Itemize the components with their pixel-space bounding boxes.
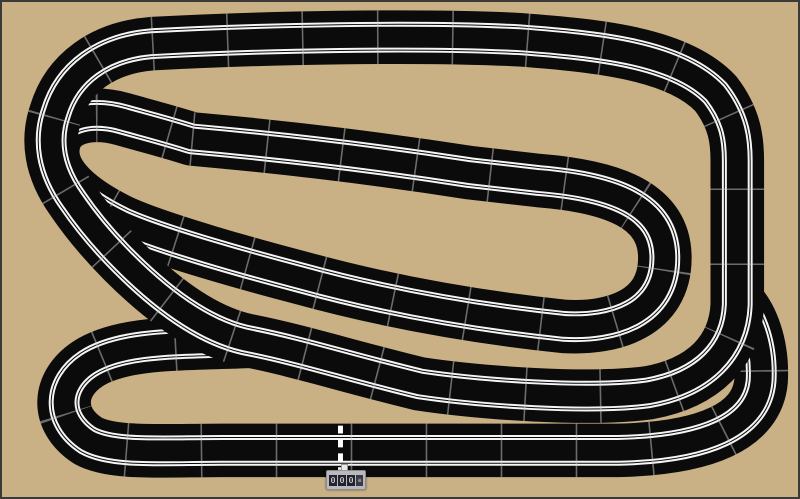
lap-counter-track-connector [341,464,348,471]
lap-counter-reset-button[interactable]: ≡ [356,475,363,486]
lap-counter-digit: 0 [347,475,355,486]
lap-counter[interactable]: 0 0 0 ≡ [326,470,366,490]
track-diagram [2,2,798,497]
lap-counter-digit: 0 [338,475,346,486]
track-layout-canvas: 0 0 0 ≡ [0,0,800,499]
lap-counter-digit: 0 [329,475,337,486]
